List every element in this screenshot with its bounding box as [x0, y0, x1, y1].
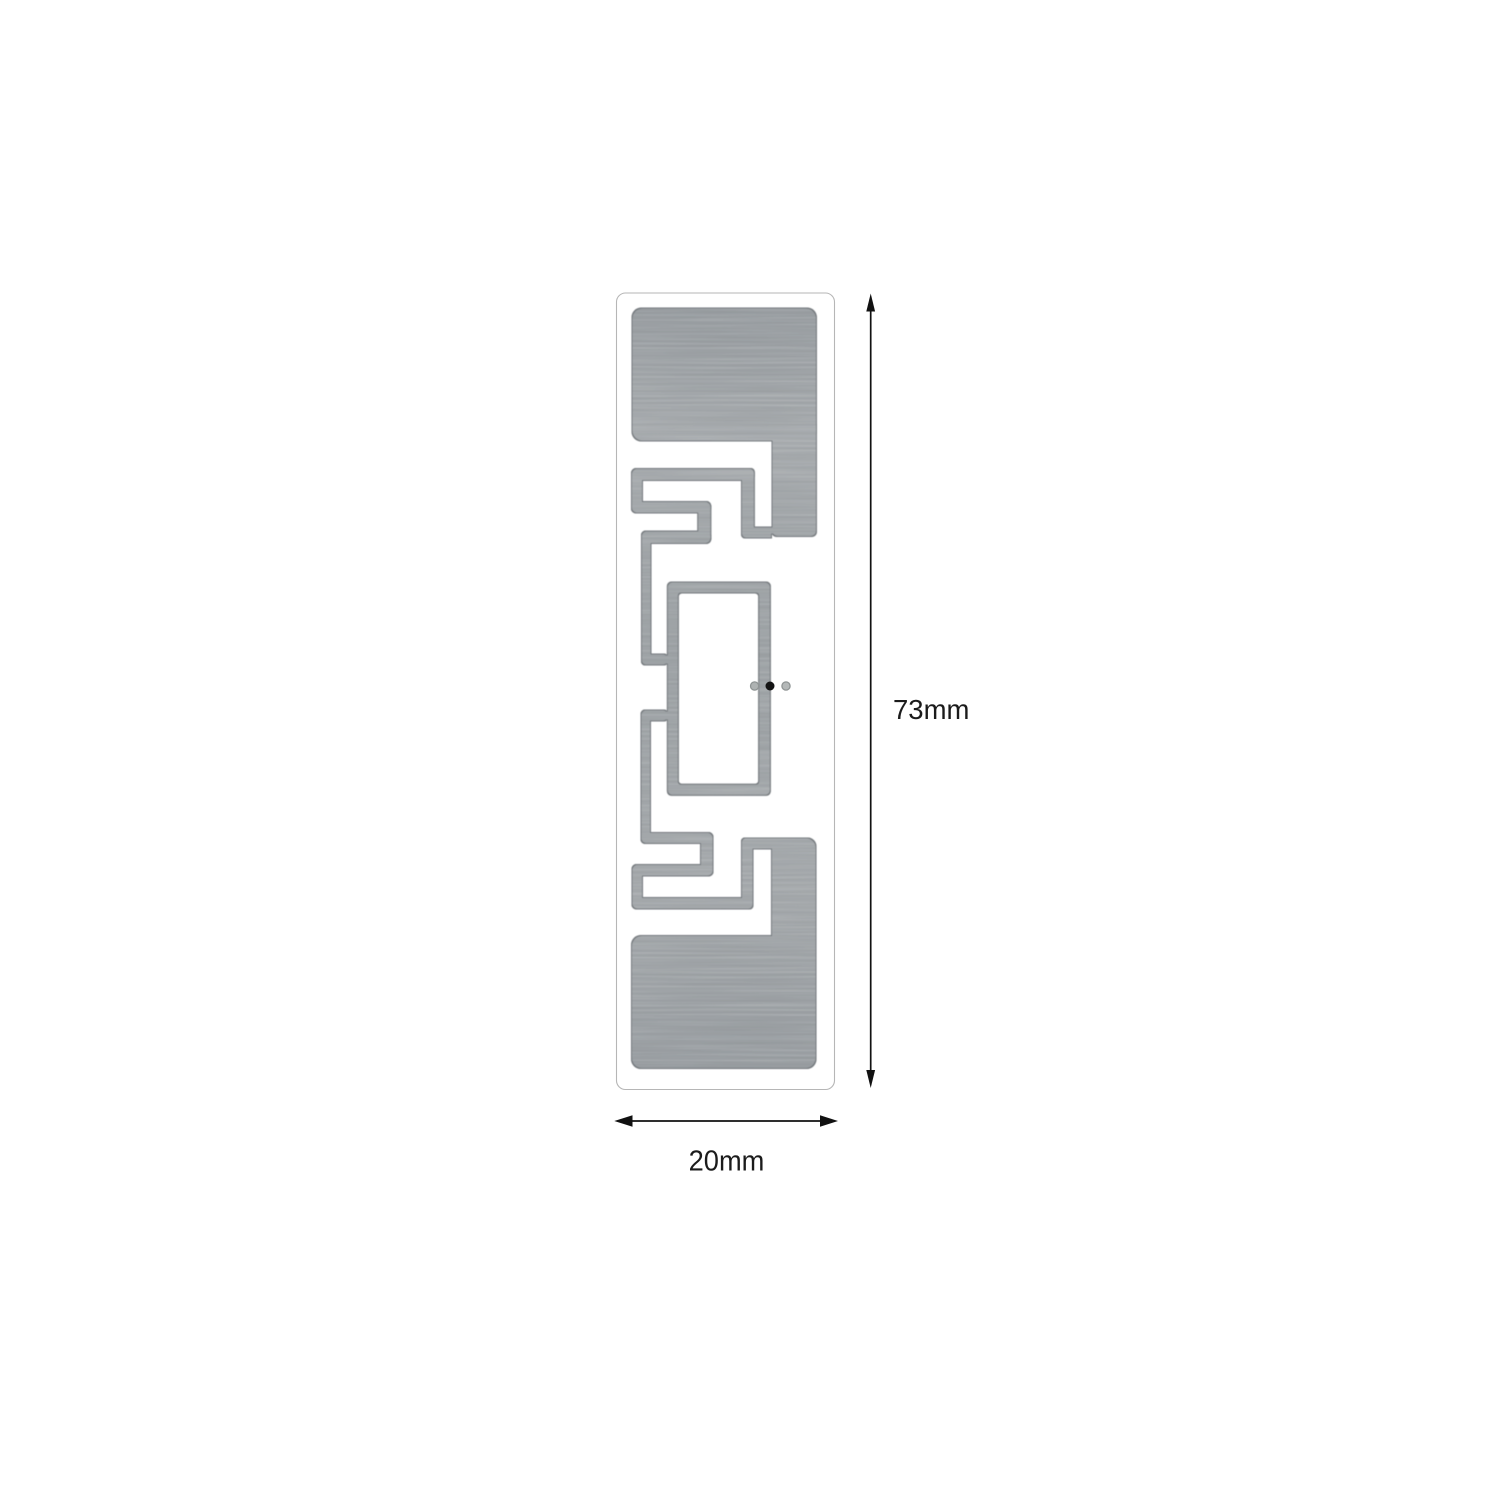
svg-text:20mm: 20mm — [689, 1145, 765, 1177]
svg-text:73mm: 73mm — [893, 694, 969, 725]
